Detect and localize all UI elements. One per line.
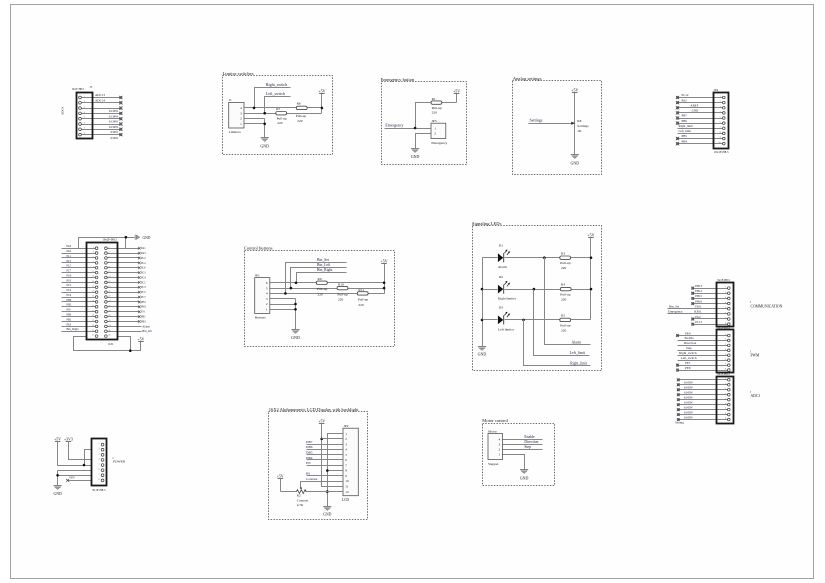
svg-text:5: 5 — [266, 286, 268, 290]
svg-text:220: 220 — [358, 303, 364, 307]
svg-text:PH16: PH16 — [695, 299, 702, 303]
svg-text:1: 1 — [434, 126, 436, 130]
svg-text:Btn_Set: Btn_Set — [317, 258, 329, 262]
svg-text:6134W: 6134W — [109, 120, 118, 124]
svg-text:9: 9 — [93, 266, 94, 268]
svg-text:32: 32 — [108, 320, 110, 322]
svg-text:PH15: PH15 — [695, 294, 702, 298]
svg-text:+5V: +5V — [571, 87, 578, 92]
svg-text:LCD: LCD — [342, 498, 350, 502]
svg-text:3: 3 — [93, 252, 94, 254]
svg-text:6134W: 6134W — [109, 125, 118, 129]
svg-text:PA2: PA2 — [682, 98, 688, 102]
svg-text:15: 15 — [92, 281, 94, 283]
svg-text:3: 3 — [266, 297, 268, 301]
svg-text:Emergency: Emergency — [385, 123, 403, 128]
svg-text:DB4: DB4 — [306, 456, 313, 460]
svg-text:PC2: PC2 — [67, 284, 72, 287]
svg-text:220: 220 — [338, 298, 344, 302]
svg-text:AREF: AREF — [690, 103, 698, 107]
svg-text:JP3: JP3 — [431, 119, 436, 123]
svg-text:220: 220 — [561, 266, 567, 270]
svg-text:Signaling LEDs: Signaling LEDs — [472, 221, 502, 226]
svg-text:220: 220 — [318, 292, 324, 296]
svg-text:7: 7 — [93, 261, 94, 263]
svg-text:Left_switch: Left_switch — [266, 91, 285, 96]
svg-text:R2: R2 — [297, 494, 301, 498]
svg-text:R4: R4 — [561, 283, 565, 287]
svg-text:Limitor switches: Limitor switches — [223, 71, 254, 76]
svg-text:220: 220 — [561, 298, 567, 302]
svg-text:Pull-up: Pull-up — [277, 117, 288, 121]
svg-text:J: J — [750, 391, 751, 394]
svg-text:Motor: Motor — [488, 429, 498, 433]
svg-text:6145W: 6145W — [684, 391, 693, 395]
svg-text:6: 6 — [266, 281, 268, 285]
svg-text:220: 220 — [561, 328, 567, 332]
svg-text:6145W: 6145W — [684, 386, 693, 390]
svg-text:K31: K31 — [109, 342, 115, 346]
svg-text:PE0: PE0 — [685, 366, 691, 370]
svg-text:Emergency: Emergency — [431, 141, 447, 145]
svg-text:Btn_Right: Btn_Right — [67, 327, 79, 331]
svg-text:8x1F-H8.5: 8x1F-H8.5 — [72, 88, 84, 91]
svg-text:6145W: 6145W — [684, 400, 693, 404]
svg-text:PH1: PH1 — [141, 301, 146, 304]
svg-text:4.7K: 4.7K — [297, 503, 304, 507]
svg-text:6145W: 6145W — [684, 381, 693, 385]
svg-text:PG4: PG4 — [695, 315, 701, 319]
svg-text:PB2: PB2 — [67, 318, 72, 321]
svg-text:Btn_left: Btn_left — [142, 329, 152, 333]
svg-text:PL4: PL4 — [141, 262, 146, 265]
svg-text:Pull-up: Pull-up — [317, 287, 328, 291]
svg-text:Enable: Enable — [685, 336, 695, 340]
svg-text:8x1F-H8.5: 8x1F-H8.5 — [92, 488, 106, 492]
svg-text:PH3: PH3 — [141, 306, 146, 309]
svg-text:34: 34 — [108, 325, 110, 327]
svg-text:Contrast: Contrast — [306, 477, 318, 481]
svg-text:PB6: PB6 — [682, 119, 688, 123]
svg-text:Pull-up: Pull-up — [337, 292, 348, 296]
svg-text:PL3: PL3 — [67, 260, 72, 263]
svg-text:2: 2 — [108, 247, 109, 249]
svg-text:Settings: Settings — [577, 124, 589, 128]
svg-text:PC13: PC13 — [695, 320, 702, 324]
svg-text:PJ1: PJ1 — [141, 311, 146, 314]
svg-text:R11: R11 — [358, 288, 364, 292]
svg-text:GND: GND — [291, 335, 300, 340]
svg-text:Btn_Right: Btn_Right — [317, 268, 332, 272]
svg-text:PC6: PC6 — [67, 294, 72, 297]
svg-text:Stepper: Stepper — [488, 462, 500, 466]
svg-text:Left limitor: Left limitor — [498, 327, 515, 331]
svg-text:PL1: PL1 — [67, 255, 72, 258]
svg-text:PE1: PE1 — [685, 361, 691, 365]
svg-text:Pull-up: Pull-up — [560, 293, 571, 297]
svg-text:20: 20 — [108, 291, 110, 293]
svg-text:Btn_Set: Btn_Set — [669, 305, 679, 309]
svg-text:ADC4: ADC4 — [61, 106, 65, 115]
svg-text:PC7: PC7 — [141, 296, 146, 299]
svg-text:634W: 634W — [111, 136, 119, 140]
svg-text:R6: R6 — [297, 102, 301, 106]
svg-text:PA3: PA3 — [67, 323, 72, 326]
svg-text:1: 1 — [240, 122, 242, 126]
svg-text:+5V: +5V — [453, 88, 460, 93]
svg-text:D2: D2 — [499, 275, 504, 279]
svg-text:JP1: JP1 — [255, 273, 260, 277]
svg-text:+5V: +5V — [318, 88, 325, 93]
svg-text:J: J — [750, 351, 751, 354]
svg-text:17: 17 — [92, 286, 94, 288]
svg-text:PG1: PG1 — [141, 272, 146, 275]
svg-text:PE4: PE4 — [685, 331, 691, 335]
svg-text:1: 1 — [266, 308, 268, 312]
svg-text:PL6: PL6 — [141, 267, 146, 270]
svg-text:Direction: Direction — [524, 440, 538, 444]
svg-text:PC12: PC12 — [682, 93, 689, 97]
svg-text:PB5: PB5 — [682, 134, 688, 138]
svg-text:Alarm: Alarm — [498, 265, 507, 269]
svg-text:PA2: PA2 — [67, 250, 72, 253]
svg-text:PC0: PC0 — [67, 279, 72, 282]
svg-text:31: 31 — [92, 320, 94, 322]
svg-text:R1: R1 — [432, 97, 436, 101]
svg-text:4: 4 — [108, 252, 109, 254]
svg-text:28: 28 — [108, 310, 110, 312]
svg-text:11: 11 — [345, 485, 349, 489]
svg-text:Right_limit: Right_limit — [679, 124, 693, 128]
svg-text:Left_limit: Left_limit — [570, 351, 585, 355]
svg-text:Pull-up: Pull-up — [560, 261, 571, 265]
svg-text:Step: Step — [524, 445, 531, 449]
svg-text:PB7: PB7 — [682, 114, 688, 118]
svg-text:J: J — [112, 457, 113, 460]
svg-text:GND: GND — [323, 513, 331, 517]
svg-text:+5V: +5V — [277, 474, 284, 478]
svg-text:PC1: PC1 — [141, 281, 146, 284]
svg-text:Btn_Left: Btn_Left — [317, 263, 330, 267]
svg-text:6: 6 — [108, 257, 109, 259]
svg-text:D1: D1 — [499, 244, 504, 248]
svg-text:2: 2 — [266, 302, 268, 306]
svg-text:2: 2 — [240, 117, 242, 121]
svg-text:JP2: JP2 — [344, 424, 349, 428]
svg-text:PC3: PC3 — [141, 286, 146, 289]
svg-text:+5V: +5V — [587, 232, 594, 237]
svg-text:PA3: PA3 — [141, 252, 146, 255]
svg-text:13: 13 — [92, 276, 94, 278]
svg-text:R3: R3 — [561, 251, 565, 255]
svg-text:220: 220 — [432, 111, 438, 115]
svg-text:Alarm: Alarm — [142, 324, 150, 328]
svg-text:ADC14: ADC14 — [95, 98, 105, 102]
svg-text:GND: GND — [570, 161, 579, 166]
svg-text:22: 22 — [108, 296, 110, 298]
svg-text:POWER: POWER — [113, 460, 126, 464]
svg-text:PH13: PH13 — [695, 284, 702, 288]
svg-text:4: 4 — [498, 438, 500, 442]
svg-text:PC5: PC5 — [141, 291, 146, 294]
svg-text:PH2: PH2 — [67, 304, 72, 307]
svg-text:PA0: PA0 — [67, 245, 72, 248]
svg-text:GND: GND — [411, 154, 420, 159]
svg-text:Left_limit: Left_limit — [679, 129, 692, 133]
svg-text:8: 8 — [108, 261, 109, 263]
svg-text:Left_switch: Left_switch — [681, 356, 697, 360]
svg-text:GND: GND — [520, 475, 529, 480]
svg-text:PB1: PB1 — [141, 315, 146, 318]
svg-text:PA1: PA1 — [141, 247, 146, 250]
svg-text:ADC13: ADC13 — [95, 93, 105, 97]
svg-text:Analog settings: Analog settings — [513, 76, 542, 81]
svg-text:Motor control: Motor control — [482, 418, 508, 423]
svg-text:J1: J1 — [229, 98, 232, 102]
svg-text:25: 25 — [92, 305, 94, 307]
svg-text:PH14: PH14 — [695, 289, 702, 293]
svg-text:Right_switch: Right_switch — [679, 351, 697, 355]
svg-text:6134W: 6134W — [109, 109, 118, 113]
svg-text:JP4: JP4 — [714, 88, 719, 92]
svg-text:PL2: PL2 — [141, 257, 146, 260]
svg-text:1: 1 — [498, 452, 500, 456]
svg-text:2: 2 — [498, 447, 500, 451]
svg-text:19x2F-H8.5: 19x2F-H8.5 — [102, 238, 117, 242]
svg-text:PC4: PC4 — [67, 289, 72, 292]
svg-text:D3: D3 — [499, 306, 504, 310]
svg-text:3: 3 — [498, 443, 500, 447]
svg-text:5: 5 — [93, 257, 94, 259]
svg-text:GND: GND — [692, 109, 699, 113]
svg-text:11: 11 — [92, 271, 94, 273]
svg-text:TX01: TX01 — [694, 305, 701, 309]
svg-text:Limitors: Limitors — [229, 130, 242, 134]
svg-text:R7: R7 — [276, 107, 280, 111]
svg-text:COMMUNICATION: COMMUNICATION — [751, 304, 783, 308]
svg-text:36: 36 — [108, 330, 110, 332]
svg-text:Right_limit: Right_limit — [570, 361, 587, 365]
svg-text:Right limiter: Right limiter — [498, 297, 517, 301]
svg-text:Direction: Direction — [684, 341, 697, 345]
svg-text:PB4: PB4 — [682, 139, 688, 143]
svg-text:37: 37 — [92, 335, 94, 337]
svg-text:+5V: +5V — [54, 437, 61, 441]
svg-text:PL5: PL5 — [67, 265, 72, 268]
svg-text:GND: GND — [53, 492, 61, 496]
svg-text:Alarm: Alarm — [572, 341, 582, 345]
svg-text:Setting: Setting — [675, 420, 684, 424]
svg-text:35: 35 — [92, 330, 94, 332]
svg-text:Step: Step — [686, 346, 692, 350]
svg-text:PB3: PB3 — [141, 320, 146, 323]
svg-text:18: 18 — [108, 286, 110, 288]
svg-text:J: J — [750, 301, 751, 304]
svg-text:Pull-up: Pull-up — [432, 106, 443, 110]
svg-text:10x1F-H8.5: 10x1F-H8.5 — [714, 150, 729, 154]
svg-text:+5V: +5V — [318, 419, 325, 423]
svg-text:24: 24 — [108, 301, 110, 303]
svg-text:12: 12 — [345, 490, 349, 494]
svg-text:Pull-up: Pull-up — [296, 114, 307, 118]
svg-text:29: 29 — [92, 315, 94, 317]
svg-text:33: 33 — [92, 325, 94, 327]
svg-text:ADC1: ADC1 — [751, 394, 761, 398]
svg-text:DB7: DB7 — [306, 440, 313, 444]
svg-text:4: 4 — [266, 292, 268, 296]
svg-text:6145W: 6145W — [684, 415, 693, 419]
svg-text:19: 19 — [92, 291, 94, 293]
svg-text:6145W: 6145W — [684, 410, 693, 414]
svg-text:EN: EN — [306, 461, 311, 465]
svg-text:Buttons: Buttons — [255, 316, 267, 320]
svg-text:1K: 1K — [577, 129, 582, 133]
svg-text:23: 23 — [92, 301, 94, 303]
svg-text:9x1F-H8.5: 9x1F-H8.5 — [717, 278, 730, 282]
svg-text:DB6: DB6 — [306, 445, 313, 449]
svg-text:PG0: PG0 — [67, 274, 72, 277]
svg-text:PH0: PH0 — [67, 299, 72, 302]
svg-text:PB0: PB0 — [67, 313, 72, 316]
svg-text:Enable: Enable — [524, 435, 535, 439]
svg-text:Emergency: Emergency — [668, 310, 683, 314]
svg-text:38: 38 — [108, 335, 110, 337]
svg-text:Pull-up: Pull-up — [358, 298, 369, 302]
svg-text:PWM: PWM — [751, 354, 761, 358]
svg-text:PG3: PG3 — [141, 276, 146, 279]
svg-text:12: 12 — [108, 271, 110, 273]
svg-text:R9: R9 — [318, 277, 322, 281]
svg-text:30: 30 — [108, 315, 110, 317]
svg-text:Contrast: Contrast — [297, 498, 309, 502]
svg-text:2: 2 — [434, 132, 436, 136]
svg-text:Emergency button: Emergency button — [381, 77, 415, 82]
svg-text:220: 220 — [277, 121, 283, 125]
svg-text:PL7: PL7 — [67, 270, 72, 273]
svg-text:16: 16 — [108, 281, 110, 283]
svg-text:R8: R8 — [577, 119, 581, 123]
svg-text:10: 10 — [345, 479, 349, 483]
svg-text:6145W: 6145W — [684, 395, 693, 399]
svg-text:16X2 Alphanumeric LCD Display: 16X2 Alphanumeric LCD Display with backl… — [269, 407, 360, 412]
svg-text:+5V: +5V — [381, 258, 388, 263]
svg-text:27: 27 — [92, 310, 94, 312]
svg-text:Control buttons: Control buttons — [244, 246, 273, 251]
svg-text:PJ0: PJ0 — [67, 309, 72, 312]
svg-text:26: 26 — [108, 305, 110, 307]
svg-text:+5V: +5V — [138, 337, 145, 341]
svg-text:GND: GND — [478, 352, 487, 357]
svg-text:GND: GND — [260, 144, 269, 149]
svg-text:VIN: VIN — [69, 476, 75, 480]
svg-text:+3V3: +3V3 — [64, 437, 73, 441]
svg-text:3: 3 — [240, 111, 242, 115]
svg-text:R10: R10 — [338, 283, 344, 287]
svg-text:4: 4 — [240, 106, 242, 110]
svg-text:6134W: 6134W — [109, 114, 118, 118]
svg-text:Right_switch: Right_switch — [266, 82, 287, 87]
svg-text:10: 10 — [108, 266, 110, 268]
svg-text:R5: R5 — [561, 314, 565, 318]
svg-text:GND: GND — [143, 236, 151, 240]
svg-text:1: 1 — [93, 247, 94, 249]
svg-text:21: 21 — [92, 296, 94, 298]
svg-text:DB5: DB5 — [306, 450, 313, 454]
svg-text:14: 14 — [108, 276, 110, 278]
svg-text:220: 220 — [297, 119, 303, 123]
svg-text:6145W: 6145W — [684, 405, 693, 409]
svg-text:Settings: Settings — [530, 118, 543, 123]
svg-text:RX01: RX01 — [694, 310, 702, 314]
svg-text:RS: RS — [306, 472, 310, 476]
svg-text:Pull-up: Pull-up — [560, 323, 571, 327]
svg-text:634W: 634W — [111, 130, 119, 134]
